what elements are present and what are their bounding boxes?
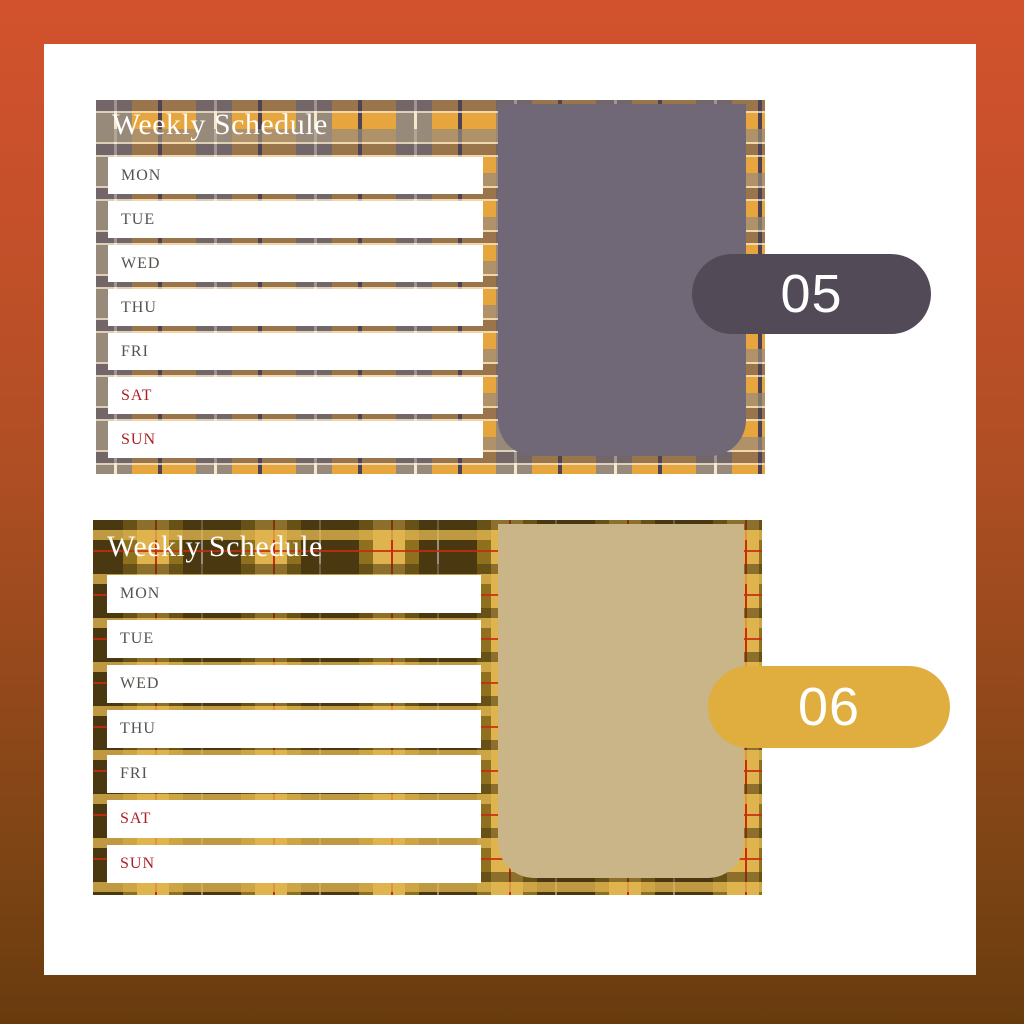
day-row-sat: SAT [107,800,481,838]
day-row-sun: SUN [107,845,481,883]
notes-panel [498,524,744,878]
day-row-mon: MON [107,575,481,613]
day-row-thu: THU [107,710,481,748]
day-row-tue: TUE [108,201,483,238]
day-row-wed: WED [108,245,483,282]
page-number-badge-05: 05 [692,254,931,334]
day-row-fri: FRI [108,333,483,370]
weekly-schedule-planner-06: Weekly Schedule MON TUE WED THU FRI [93,520,762,895]
day-row-mon: MON [108,157,483,194]
badge-number-06: 06 [798,680,860,734]
day-label-thu: THU [120,721,156,737]
day-label-fri: FRI [121,344,149,360]
day-label-thu: THU [121,300,157,316]
day-label-tue: TUE [121,212,155,228]
page-number-badge-06: 06 [708,666,950,748]
day-row-fri: FRI [107,755,481,793]
day-label-sat: SAT [121,388,152,404]
day-label-fri: FRI [120,766,148,782]
day-row-thu: THU [108,289,483,326]
planner-title: Weekly Schedule [112,108,328,142]
day-rows: MON TUE WED THU FRI SAT SUN [107,575,481,883]
day-rows: MON TUE WED THU FRI SAT SUN [108,157,483,458]
poster-background: Weekly Schedule MON TUE WED THU FRI [0,0,1024,1024]
day-label-sun: SUN [120,856,155,872]
day-row-sat: SAT [108,377,483,414]
badge-number-05: 05 [780,267,842,321]
day-row-sun: SUN [108,421,483,458]
day-label-sun: SUN [121,432,156,448]
day-label-mon: MON [121,168,161,184]
planner-title: Weekly Schedule [107,530,323,564]
day-label-tue: TUE [120,631,154,647]
poster-card: Weekly Schedule MON TUE WED THU FRI [44,44,976,975]
weekly-schedule-planner-05: Weekly Schedule MON TUE WED THU FRI [96,100,765,474]
day-label-mon: MON [120,586,160,602]
day-label-wed: WED [121,256,160,272]
day-row-tue: TUE [107,620,481,658]
day-row-wed: WED [107,665,481,703]
day-label-wed: WED [120,676,159,692]
day-label-sat: SAT [120,811,151,827]
